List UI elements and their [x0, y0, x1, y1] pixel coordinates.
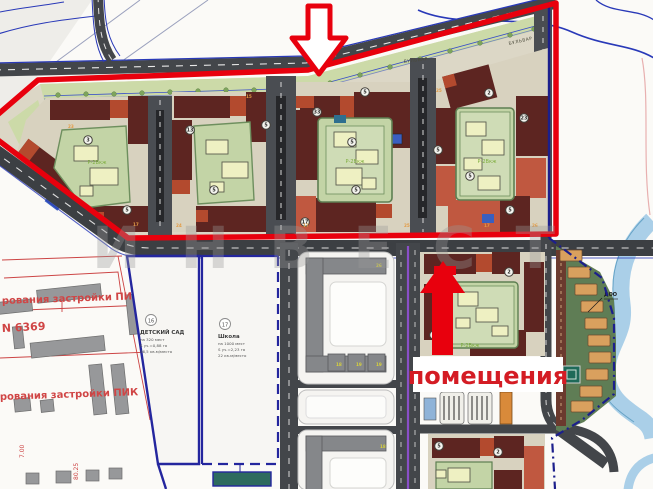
svg-text:23: 23: [521, 116, 528, 122]
svg-text:23: 23: [68, 124, 74, 129]
school-line-2: S уч.=2,23 га: [218, 347, 246, 352]
svg-text:13: 13: [187, 128, 194, 134]
kindergarten-line-3: 36,5 кв.м/место: [140, 349, 173, 354]
school-line-3: 22 кв.м/место: [218, 353, 247, 358]
kindergarten-line-2: S уч.=0,88 га: [140, 343, 168, 348]
svg-text:5: 5: [264, 123, 267, 129]
residential-block-b: [172, 92, 266, 232]
svg-text:Р-2Вкж: Р-2Вкж: [88, 160, 107, 166]
svg-text:5: 5: [437, 444, 440, 450]
svg-text:33: 33: [314, 110, 321, 116]
school-number: 17: [222, 322, 228, 328]
svg-text:Р-2Вкж: Р-2Вкж: [478, 159, 497, 165]
dimension-b: 80.25: [73, 463, 80, 480]
svg-text:Р-2Вкж: Р-2Вкж: [461, 343, 480, 349]
site-plan-map: БУЛЬВАР БУЛЬВАР рования застройки ПИК N …: [0, 0, 653, 489]
kindergarten-line-1: на 320 мест: [140, 337, 165, 342]
svg-text:5: 5: [468, 174, 471, 180]
svg-text:5: 5: [350, 140, 353, 146]
svg-text:5: 5: [354, 188, 357, 194]
residential-block-d: [436, 48, 548, 232]
school-building: [213, 472, 271, 486]
school-line-1: на 1000 мест: [218, 341, 246, 346]
premises-text: помещения: [408, 362, 569, 390]
svg-text:19: 19: [376, 362, 382, 367]
svg-text:25: 25: [436, 88, 442, 93]
svg-text:19: 19: [356, 362, 362, 367]
svg-text:5: 5: [125, 208, 128, 214]
kindergarten-number: 16: [148, 318, 154, 324]
residential-block-c: [296, 82, 410, 232]
svg-text:2: 2: [487, 91, 490, 97]
kindergarten-title: ДЕТСКИЙ САД: [140, 328, 185, 336]
plan-number: N 6369: [1, 320, 45, 335]
residential-block-f: [428, 434, 545, 489]
svg-text:5: 5: [363, 90, 366, 96]
svg-text:5: 5: [212, 188, 215, 194]
svg-text:2: 2: [496, 450, 499, 456]
svg-text:3: 3: [86, 138, 89, 144]
svg-text:18: 18: [380, 444, 386, 449]
svg-text:18: 18: [336, 362, 342, 367]
svg-text:5: 5: [436, 148, 439, 154]
premises-label: помещения: [408, 357, 569, 392]
svg-text:5: 5: [508, 208, 511, 214]
dimension-a: 7.00: [19, 444, 26, 458]
svg-text:Р-2Вкж: Р-2Вкж: [346, 159, 365, 165]
watermark-text: ИНВЕСТ: [92, 214, 595, 282]
svg-text:15: 15: [246, 94, 252, 99]
center-apartment-parcels: [298, 252, 394, 489]
school-title: Школа: [218, 334, 240, 340]
